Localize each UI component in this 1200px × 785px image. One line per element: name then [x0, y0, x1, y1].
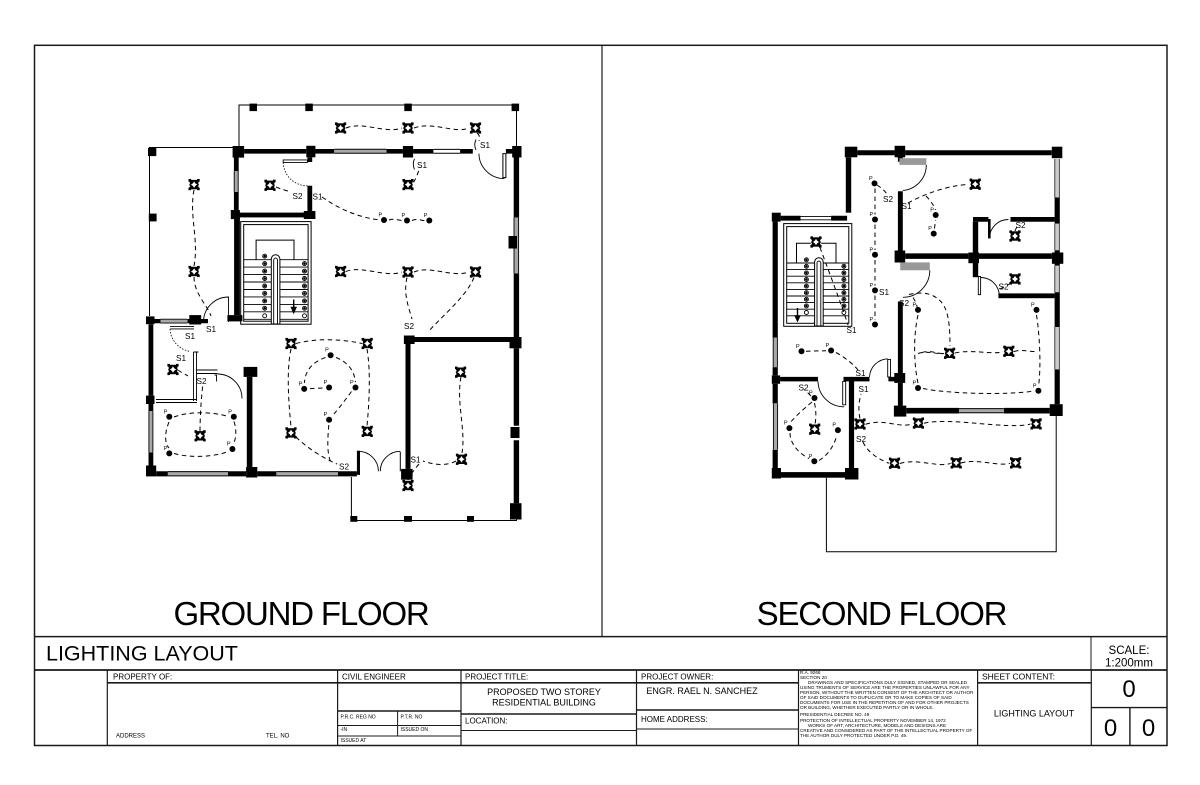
- svg-text:S2: S2: [197, 377, 207, 386]
- svg-text:S2: S2: [883, 195, 893, 204]
- svg-text:0: 0: [1104, 715, 1117, 742]
- svg-text:CIVIL ENGINEER: CIVIL ENGINEER: [342, 673, 406, 682]
- svg-text:S1: S1: [206, 325, 216, 334]
- svg-text:S1: S1: [417, 161, 427, 170]
- svg-text:OR BUILDING, WHETHER EXECUTED: OR BUILDING, WHETHER EXECUTED PARTLY OR …: [800, 705, 934, 710]
- svg-text:PROPOSED TWO STOREY: PROPOSED TWO STOREY: [487, 687, 601, 697]
- svg-text:LIGHTING LAYOUT: LIGHTING LAYOUT: [994, 709, 1075, 719]
- svg-text:S1: S1: [176, 354, 186, 363]
- svg-text:P.R.C. REG NO: P.R.C. REG NO: [341, 715, 376, 721]
- svg-text:S2: S2: [404, 322, 414, 331]
- svg-text:SCALE:: SCALE:: [1109, 645, 1150, 657]
- svg-text:S2: S2: [899, 299, 909, 308]
- svg-text:-IN: -IN: [341, 727, 348, 733]
- svg-text:S2: S2: [799, 384, 809, 393]
- svg-text:S1: S1: [879, 288, 889, 297]
- svg-text:0: 0: [1142, 715, 1155, 742]
- svg-text:PROJECT TITLE:: PROJECT TITLE:: [465, 673, 528, 682]
- svg-text:SHEET CONTENT:: SHEET CONTENT:: [982, 672, 1055, 682]
- svg-text:S2: S2: [293, 192, 303, 201]
- svg-text:S1: S1: [847, 326, 857, 335]
- svg-text:LOCATION:: LOCATION:: [465, 717, 508, 726]
- svg-text:S1: S1: [313, 193, 323, 202]
- svg-text:PROPERTY OF:: PROPERTY OF:: [113, 673, 172, 682]
- svg-text:LIGHTING LAYOUT: LIGHTING LAYOUT: [46, 642, 238, 666]
- svg-text:THE AUTHOR DULY PROTECTED UNDE: THE AUTHOR DULY PROTECTED UNDER P.D. 49.: [800, 733, 907, 738]
- svg-text:S1: S1: [859, 385, 869, 394]
- svg-text:S2: S2: [339, 463, 349, 472]
- svg-text:S1: S1: [902, 202, 912, 211]
- svg-text:1:200mm: 1:200mm: [1105, 658, 1153, 670]
- svg-text:RESIDENTIAL BUILDING: RESIDENTIAL BUILDING: [492, 698, 596, 708]
- svg-text:GROUND FLOOR: GROUND FLOOR: [173, 595, 428, 632]
- svg-text:PROJECT OWNER:: PROJECT OWNER:: [641, 673, 713, 682]
- svg-text:HOME ADDRESS:: HOME ADDRESS:: [641, 715, 708, 724]
- svg-text:ISSUED AT: ISSUED AT: [341, 738, 367, 744]
- svg-text:S1: S1: [480, 141, 490, 150]
- svg-text:S2: S2: [999, 283, 1009, 292]
- svg-text:ADDRESS: ADDRESS: [116, 734, 145, 740]
- svg-text:P.T.R. NO: P.T.R. NO: [401, 715, 423, 721]
- svg-text:ISSUED ON: ISSUED ON: [401, 727, 429, 733]
- svg-text:S2: S2: [856, 435, 866, 444]
- svg-text:ENGR. RAEL N. SANCHEZ: ENGR. RAEL N. SANCHEZ: [646, 686, 758, 696]
- svg-text:S1: S1: [185, 332, 195, 341]
- svg-text:SECOND FLOOR: SECOND FLOOR: [757, 595, 1007, 632]
- svg-text:PRESIDENTIAL DECREE NO. 49: PRESIDENTIAL DECREE NO. 49: [800, 712, 870, 717]
- svg-text:0: 0: [1122, 676, 1135, 703]
- svg-text:S1: S1: [856, 369, 866, 378]
- svg-text:S1: S1: [411, 456, 421, 465]
- svg-text:S2: S2: [1016, 221, 1026, 230]
- svg-text:TEL. NO: TEL. NO: [266, 734, 290, 740]
